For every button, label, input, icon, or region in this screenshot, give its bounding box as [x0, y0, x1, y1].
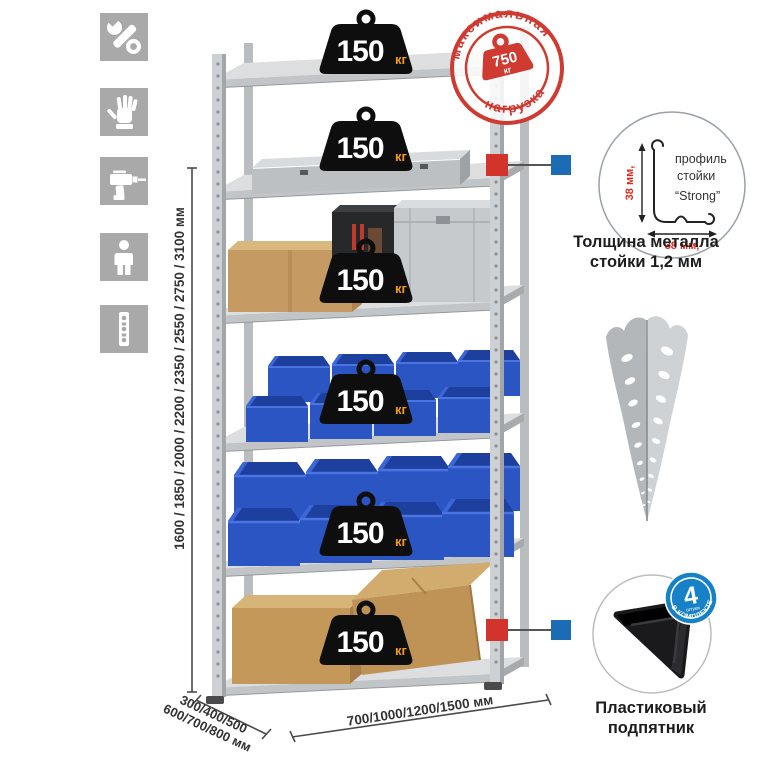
gloves-icon: [100, 88, 148, 136]
product-infographic: 150 кг 150 кг 150 кг 150 кг 150 кг 150 к…: [0, 0, 765, 765]
load-value: 150: [336, 517, 383, 550]
marker-red-top: [486, 154, 508, 176]
load-value: 150: [336, 132, 383, 165]
load-badge-shelf-5: 150 кг: [303, 490, 433, 564]
profile-caption-line-1: Толщина металла: [560, 232, 732, 252]
load-value: 150: [336, 385, 383, 418]
foot-caption: Пластиковый подпятник: [565, 698, 737, 738]
marker-blue-top: [551, 155, 571, 175]
load-badge-shelf-6: 150 кг: [303, 599, 433, 673]
foot-caption-line-2: подпятник: [565, 718, 737, 738]
drill-icon: [100, 157, 148, 205]
profile-label-1: профиль: [675, 152, 727, 166]
marker-blue-bottom: [551, 620, 571, 640]
rack-post-icon: [100, 305, 148, 353]
storage-bin: [228, 508, 300, 566]
profile-label-3: “Strong”: [675, 189, 720, 203]
load-unit: кг: [395, 643, 408, 658]
person-icon: [100, 233, 148, 281]
height-dimension-label: 1600 / 1850 / 2000 / 2200 / 2350 / 2550 …: [172, 106, 187, 651]
sidebar-tile-post: [100, 305, 148, 353]
profile-caption: Толщина металла стойки 1,2 мм: [560, 232, 732, 272]
storage-bin: [246, 396, 308, 442]
rack-foot: [484, 682, 502, 690]
sidebar-tile-drill: [100, 157, 148, 205]
profile-dim-vertical: 38 мм,: [624, 166, 636, 201]
angle-post-image: [592, 303, 704, 531]
wrench-icon: [100, 13, 148, 61]
load-unit: кг: [395, 52, 408, 67]
sidebar-tile-gloves: [100, 88, 148, 136]
load-unit: кг: [395, 281, 408, 296]
load-badge-shelf-2: 150 кг: [303, 105, 433, 179]
load-unit: кг: [395, 149, 408, 164]
load-unit: кг: [395, 402, 408, 417]
load-unit: кг: [395, 534, 408, 549]
profile-caption-line-2: стойки 1,2 мм: [560, 252, 732, 272]
load-badge-shelf-4: 150 кг: [303, 358, 433, 432]
marker-red-bottom: [486, 619, 508, 641]
sidebar-tile-person: [100, 233, 148, 281]
load-badge-shelf-3: 150 кг: [303, 237, 433, 311]
sidebar-tile-assembly: [100, 13, 148, 61]
load-value: 150: [336, 626, 383, 659]
profile-label-2: стойки: [677, 169, 715, 183]
included-count-badge: 4 штуки в комплекте: [659, 566, 724, 631]
load-badge-shelf-1: 150 кг: [303, 8, 433, 82]
foot-caption-line-1: Пластиковый: [565, 698, 737, 718]
load-value: 150: [336, 35, 383, 68]
load-value: 150: [336, 264, 383, 297]
